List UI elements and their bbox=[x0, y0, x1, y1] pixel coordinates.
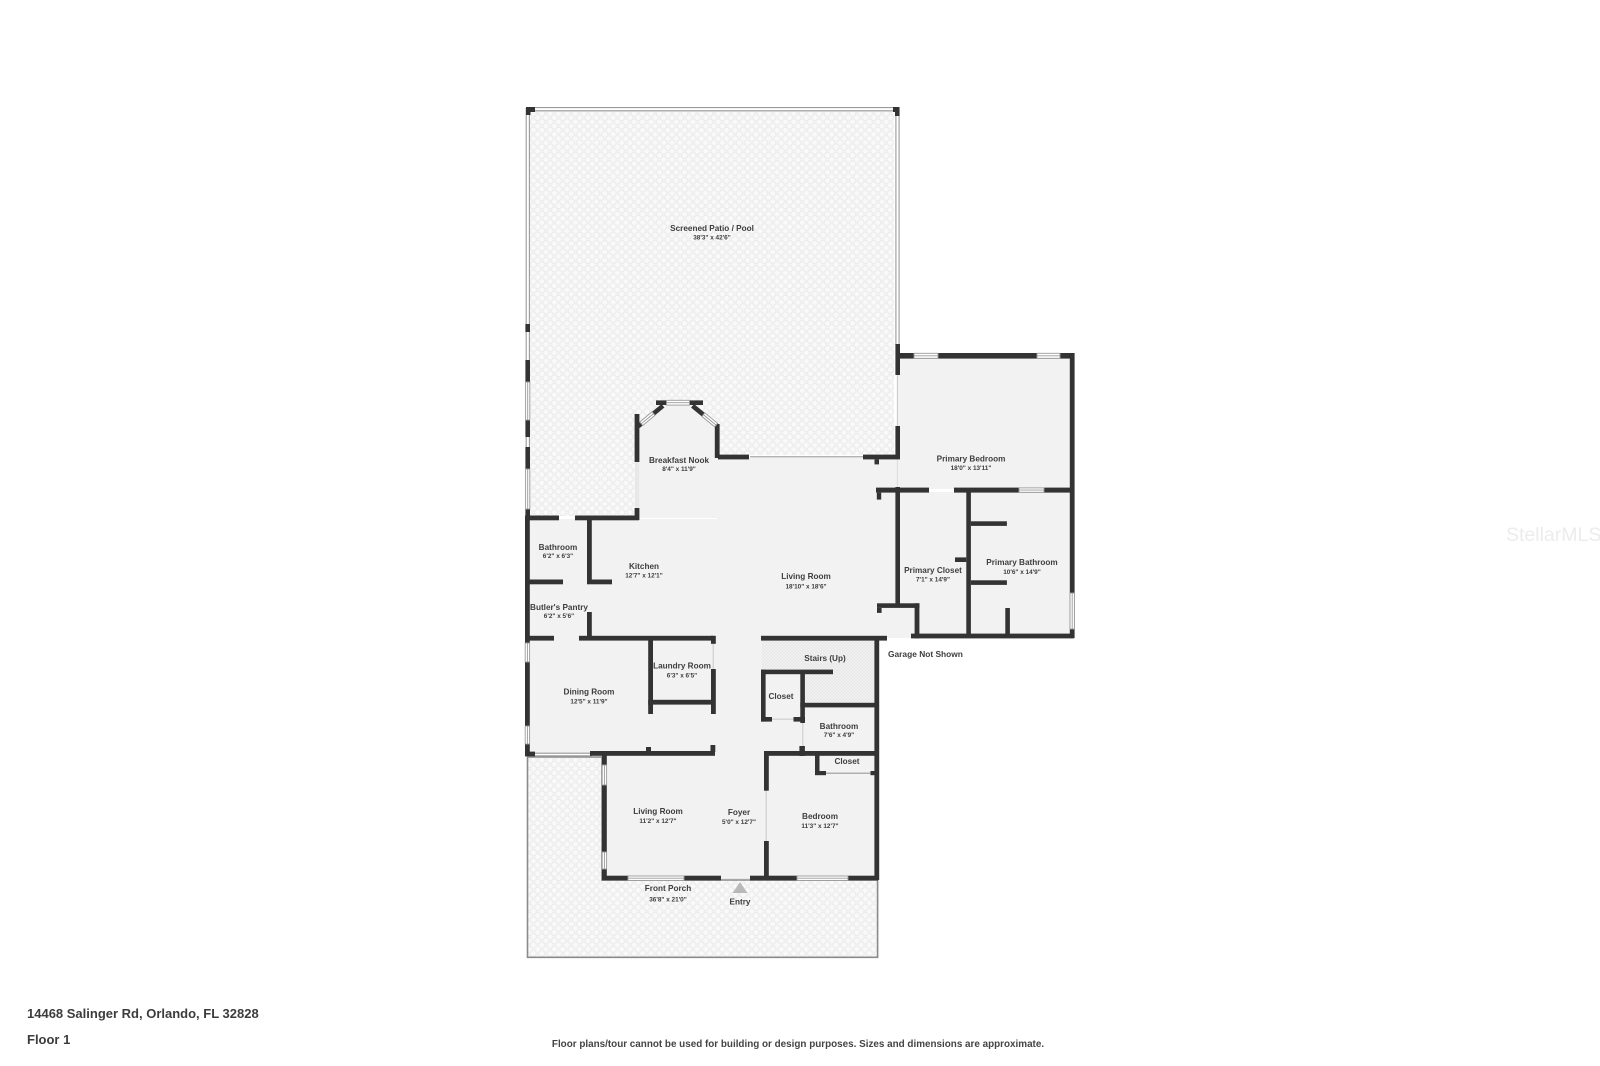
svg-text:6'2" x 5'6": 6'2" x 5'6" bbox=[544, 613, 574, 620]
svg-text:Foyer: Foyer bbox=[728, 808, 751, 817]
svg-text:10'6" x 14'9": 10'6" x 14'9" bbox=[1003, 569, 1041, 576]
svg-text:Primary Bedroom: Primary Bedroom bbox=[937, 455, 1006, 464]
svg-text:Entry: Entry bbox=[730, 898, 751, 907]
svg-text:12'7" x 12'1": 12'7" x 12'1" bbox=[625, 573, 663, 580]
svg-text:14468 Salinger Rd, Orlando, FL: 14468 Salinger Rd, Orlando, FL 32828 bbox=[27, 1006, 259, 1021]
svg-text:Primary Bathroom: Primary Bathroom bbox=[986, 558, 1057, 567]
svg-text:Bedroom: Bedroom bbox=[802, 812, 838, 821]
svg-text:Stairs (Up): Stairs (Up) bbox=[804, 654, 846, 663]
svg-text:Closet: Closet bbox=[834, 757, 859, 766]
svg-text:Floor 1: Floor 1 bbox=[27, 1032, 70, 1047]
svg-text:7'6" x 4'9": 7'6" x 4'9" bbox=[824, 732, 854, 739]
svg-text:36'8" x 21'0": 36'8" x 21'0" bbox=[649, 897, 687, 904]
svg-text:6'3" x 6'5": 6'3" x 6'5" bbox=[667, 673, 697, 680]
svg-text:11'2" x 12'7": 11'2" x 12'7" bbox=[639, 818, 676, 825]
svg-text:Bathroom: Bathroom bbox=[539, 543, 578, 552]
svg-text:Breakfast Nook: Breakfast Nook bbox=[649, 456, 710, 465]
svg-text:Floor plans/tour cannot be use: Floor plans/tour cannot be used for buil… bbox=[552, 1039, 1044, 1050]
svg-text:Living Room: Living Room bbox=[633, 807, 683, 816]
svg-text:Living Room: Living Room bbox=[781, 572, 831, 581]
svg-text:Kitchen: Kitchen bbox=[629, 562, 659, 571]
svg-text:StellarMLS: StellarMLS bbox=[1506, 524, 1600, 546]
svg-text:Dining Room: Dining Room bbox=[564, 688, 615, 697]
svg-text:Bathroom: Bathroom bbox=[820, 722, 859, 731]
svg-text:Front Porch: Front Porch bbox=[645, 884, 691, 893]
svg-text:11'3" x 12'7": 11'3" x 12'7" bbox=[801, 823, 838, 830]
svg-text:38'3" x 42'6": 38'3" x 42'6" bbox=[693, 235, 731, 242]
svg-text:Laundry Room: Laundry Room bbox=[653, 662, 711, 671]
svg-text:Garage Not Shown: Garage Not Shown bbox=[888, 649, 963, 659]
svg-text:Primary Closet: Primary Closet bbox=[904, 566, 962, 575]
svg-text:7'1" x 14'9": 7'1" x 14'9" bbox=[916, 577, 950, 584]
svg-text:18'0" x 13'11": 18'0" x 13'11" bbox=[951, 465, 992, 472]
svg-text:Butler's Pantry: Butler's Pantry bbox=[530, 603, 588, 612]
svg-text:Closet: Closet bbox=[768, 692, 793, 701]
svg-text:6'2" x 6'3": 6'2" x 6'3" bbox=[543, 553, 573, 560]
svg-text:12'5" x 11'9": 12'5" x 11'9" bbox=[570, 699, 607, 706]
svg-text:5'0" x 12'7": 5'0" x 12'7" bbox=[722, 819, 756, 826]
svg-text:8'4" x 11'9": 8'4" x 11'9" bbox=[662, 466, 696, 473]
svg-text:Screened Patio / Pool: Screened Patio / Pool bbox=[670, 224, 754, 233]
svg-text:18'10" x 18'6": 18'10" x 18'6" bbox=[785, 584, 826, 591]
